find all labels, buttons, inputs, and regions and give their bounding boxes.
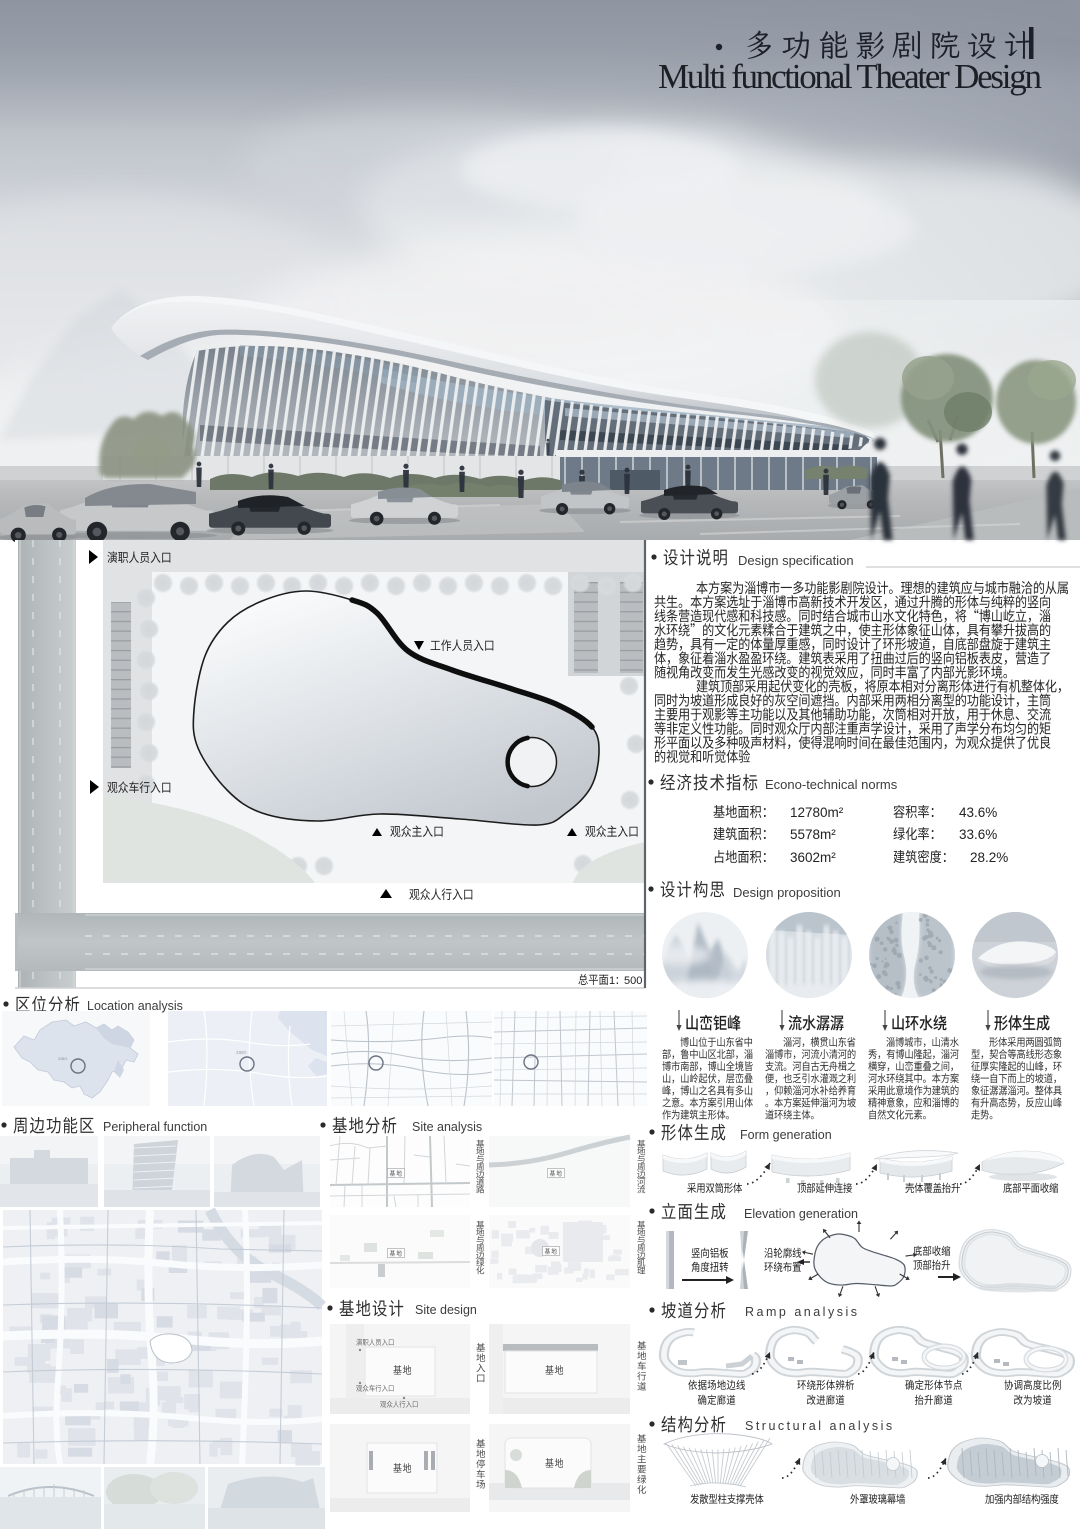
svg-text:ZIBO: ZIBO: [58, 1056, 67, 1061]
svg-text:Location analysis: Location analysis: [87, 999, 183, 1013]
svg-text:Design proposition: Design proposition: [733, 885, 841, 900]
svg-text:Form generation: Form generation: [740, 1128, 832, 1142]
svg-text:500: 500: [624, 975, 642, 987]
svg-text:Multi functional Theater Desig: Multi functional Theater Design: [658, 57, 1042, 96]
svg-text:5578m²: 5578m²: [790, 827, 836, 842]
svg-text:3602m²: 3602m²: [790, 850, 836, 865]
svg-text:Design specification: Design specification: [738, 553, 854, 568]
svg-text:Econo-technical norms: Econo-technical norms: [765, 777, 898, 792]
svg-text:43.6%: 43.6%: [959, 805, 997, 820]
svg-text:Ramp analysis: Ramp analysis: [745, 1305, 859, 1319]
svg-text:1: 1: [609, 975, 615, 987]
svg-text:Structural analysis: Structural analysis: [745, 1419, 895, 1433]
svg-text:Elevation generation: Elevation generation: [744, 1207, 858, 1221]
svg-text:Site analysis: Site analysis: [412, 1120, 482, 1134]
svg-text:28.2%: 28.2%: [970, 850, 1008, 865]
svg-text:33.6%: 33.6%: [959, 827, 997, 842]
svg-text:ZIBO: ZIBO: [236, 1050, 247, 1055]
svg-text:Site design: Site design: [415, 1303, 477, 1317]
svg-text:Peripheral function: Peripheral function: [103, 1120, 207, 1134]
svg-text:12780m²: 12780m²: [790, 805, 844, 820]
